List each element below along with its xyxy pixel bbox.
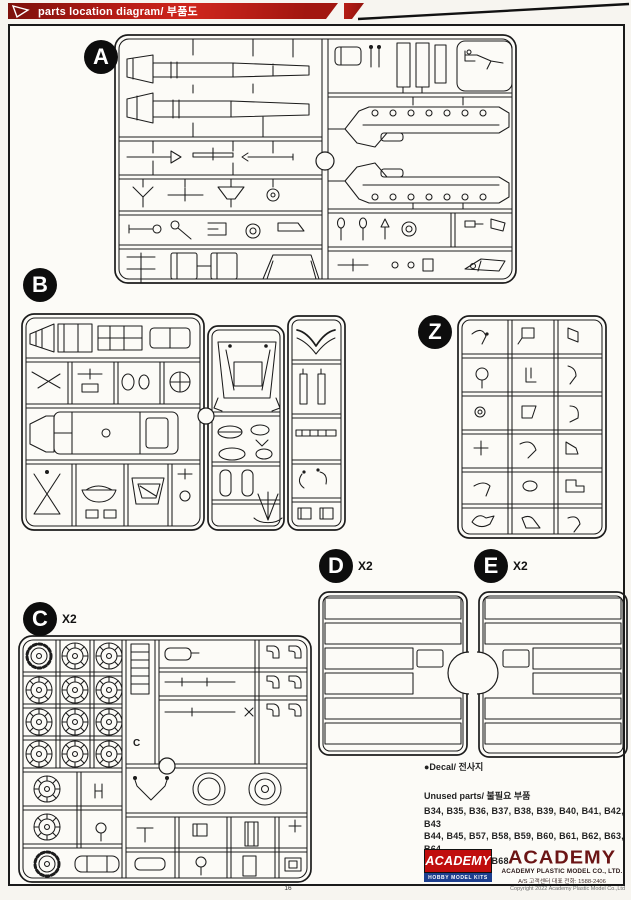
academy-logo-sub: HOBBY MODEL KITS <box>424 873 492 882</box>
sprue-e-badge: E X2 <box>474 549 528 583</box>
sprue-b-diagram <box>20 312 347 532</box>
sprue-z-diagram <box>456 314 608 540</box>
sprue-qty: X2 <box>358 559 373 573</box>
unused-parts-title: Unused parts/ 불필요 부품 <box>424 789 624 802</box>
copyright: Copyright 2022 Academy Plastic Model Co.… <box>420 886 625 892</box>
sprue-d-diagram <box>317 590 469 757</box>
academy-wordmark-block: ACADEMY ACADEMY PLASTIC MODEL CO., LTD. … <box>500 849 624 885</box>
sprue-label-letter: D <box>319 549 353 583</box>
unused-parts-line: B34, B35, B36, B37, B38, B39, B40, B41, … <box>424 805 624 830</box>
page-number: 16 <box>268 885 308 892</box>
brand-row: ACADEMY HOBBY MODEL KITS ACADEMY ACADEMY… <box>424 849 624 885</box>
sprue-label-letter: C <box>23 602 57 636</box>
sprue-label-letter: A <box>84 40 118 74</box>
sprue-qty: X2 <box>62 612 77 626</box>
sprue-b-badge: B <box>23 268 62 302</box>
sprue-d-badge: D X2 <box>319 549 373 583</box>
sprue-a-badge: A <box>84 40 123 74</box>
header-title: parts location diagram/ 부품도 <box>38 3 198 19</box>
header-arrow-icon <box>12 4 30 19</box>
sprue-a-diagram <box>113 33 518 285</box>
header-banner-tip <box>344 3 364 19</box>
sprue-label-letter: B <box>23 268 57 302</box>
company-name: ACADEMY PLASTIC MODEL CO., LTD. <box>500 868 624 875</box>
header-banner: parts location diagram/ 부품도 <box>8 3 338 19</box>
sprue-e-diagram <box>477 590 629 759</box>
sprue-c-molded-letter: C <box>133 738 140 749</box>
academy-logo-text: ACADEMY <box>424 849 492 873</box>
sprue-c-diagram: C <box>17 634 313 884</box>
service-line: A/S 고객센터 대표 전화: 1588-2406 <box>500 876 624 885</box>
sprue-c-badge: C X2 <box>23 602 77 636</box>
page: parts location diagram/ 부품도 <box>0 0 631 900</box>
academy-logo-box: ACADEMY HOBBY MODEL KITS <box>424 849 492 885</box>
sprue-label-letter: E <box>474 549 508 583</box>
decal-note: ●Decal/ 전사지 <box>424 760 624 773</box>
sprue-z-badge: Z <box>418 315 457 349</box>
sprue-label-letter: Z <box>418 315 452 349</box>
academy-wordmark: ACADEMY <box>500 850 624 867</box>
sprue-qty: X2 <box>513 559 528 573</box>
